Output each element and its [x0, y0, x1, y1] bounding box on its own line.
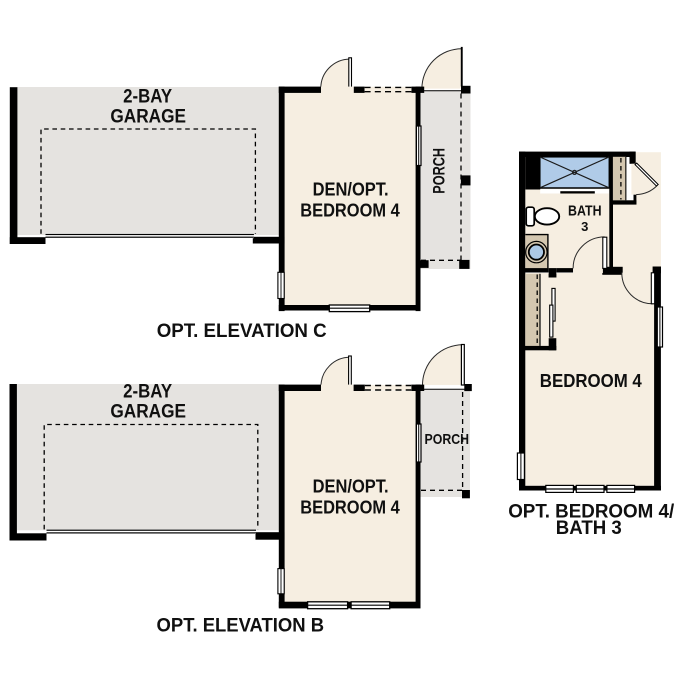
svg-text:DEN/OPT.: DEN/OPT.	[313, 476, 389, 497]
svg-text:OPT. ELEVATION B: OPT. ELEVATION B	[157, 614, 325, 636]
svg-text:BEDROOM 4: BEDROOM 4	[300, 497, 400, 518]
svg-text:3: 3	[581, 219, 588, 234]
svg-text:2-BAY: 2-BAY	[123, 86, 172, 108]
svg-text:DEN/OPT.: DEN/OPT.	[313, 179, 389, 200]
svg-text:2-BAY: 2-BAY	[123, 381, 172, 403]
svg-text:BATH: BATH	[568, 202, 602, 219]
svg-text:GARAGE: GARAGE	[110, 106, 186, 128]
svg-text:PORCH: PORCH	[425, 432, 470, 448]
svg-text:BEDROOM 4: BEDROOM 4	[540, 371, 642, 391]
svg-text:PORCH: PORCH	[430, 148, 449, 194]
svg-text:BEDROOM 4: BEDROOM 4	[300, 200, 400, 221]
svg-text:BATH 3: BATH 3	[556, 517, 622, 539]
svg-text:GARAGE: GARAGE	[110, 401, 186, 423]
svg-text:OPT. ELEVATION C: OPT. ELEVATION C	[157, 320, 327, 342]
